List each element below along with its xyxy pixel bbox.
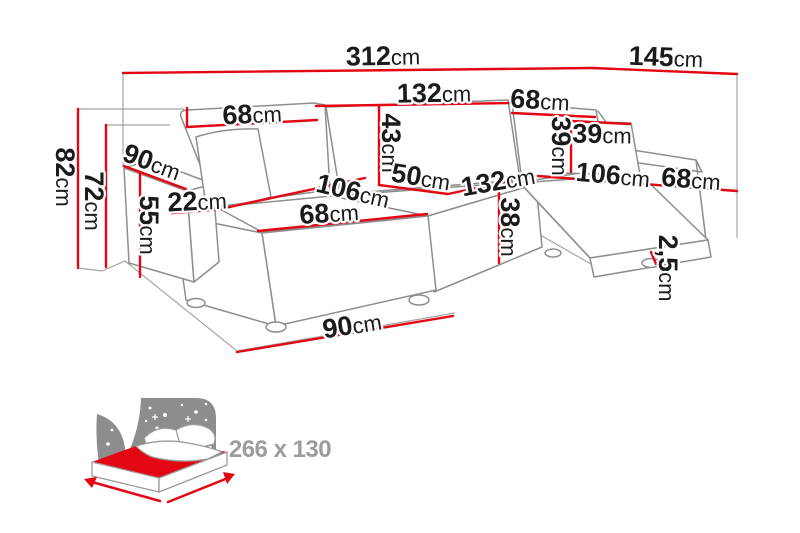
dim-armrest-width-label: 22cm [167, 184, 228, 217]
sofa-foot [545, 249, 561, 257]
sofa-dimension-diagram-page: 312cm 145cm 68cm 132cm 68cm 43cm 50cm 13… [0, 0, 800, 533]
dim-right-depth-label: 145cm [628, 41, 703, 74]
dim-leg-height-label: 2,5cm [653, 235, 683, 302]
dim-back-middle-width-label: 132cm [397, 77, 472, 108]
dim-total-height-label: 82cm [50, 147, 80, 206]
dim-pillow-width-label: 39cm [572, 118, 632, 149]
sofa-dimension-diagram: 312cm 145cm 68cm 132cm 68cm 43cm 50cm 13… [0, 0, 800, 533]
sleeping-area-icon: 266 x 130 [84, 398, 331, 502]
sofa-foot [266, 322, 286, 332]
dim-back-right-width-label: 68cm [510, 83, 571, 116]
sleeping-area-size-label: 266 x 130 [229, 436, 331, 463]
dim-armrest-height-label: 55cm [134, 195, 164, 254]
dim-chaise-right-arm-width-label: 68cm [660, 162, 721, 196]
dim-seat-height-label: 38cm [495, 197, 525, 256]
dim-backrest-total-height-label: 72cm [79, 171, 109, 230]
dim-back-left-width-label: 68cm [222, 97, 283, 130]
dim-chaise-left-seat-width-label: 68cm [298, 196, 359, 230]
sofa-foot [409, 295, 429, 305]
sofa-foot [187, 299, 205, 308]
dim-total-width-label: 312cm [346, 40, 421, 71]
guide-tick-bottom [78, 268, 102, 271]
